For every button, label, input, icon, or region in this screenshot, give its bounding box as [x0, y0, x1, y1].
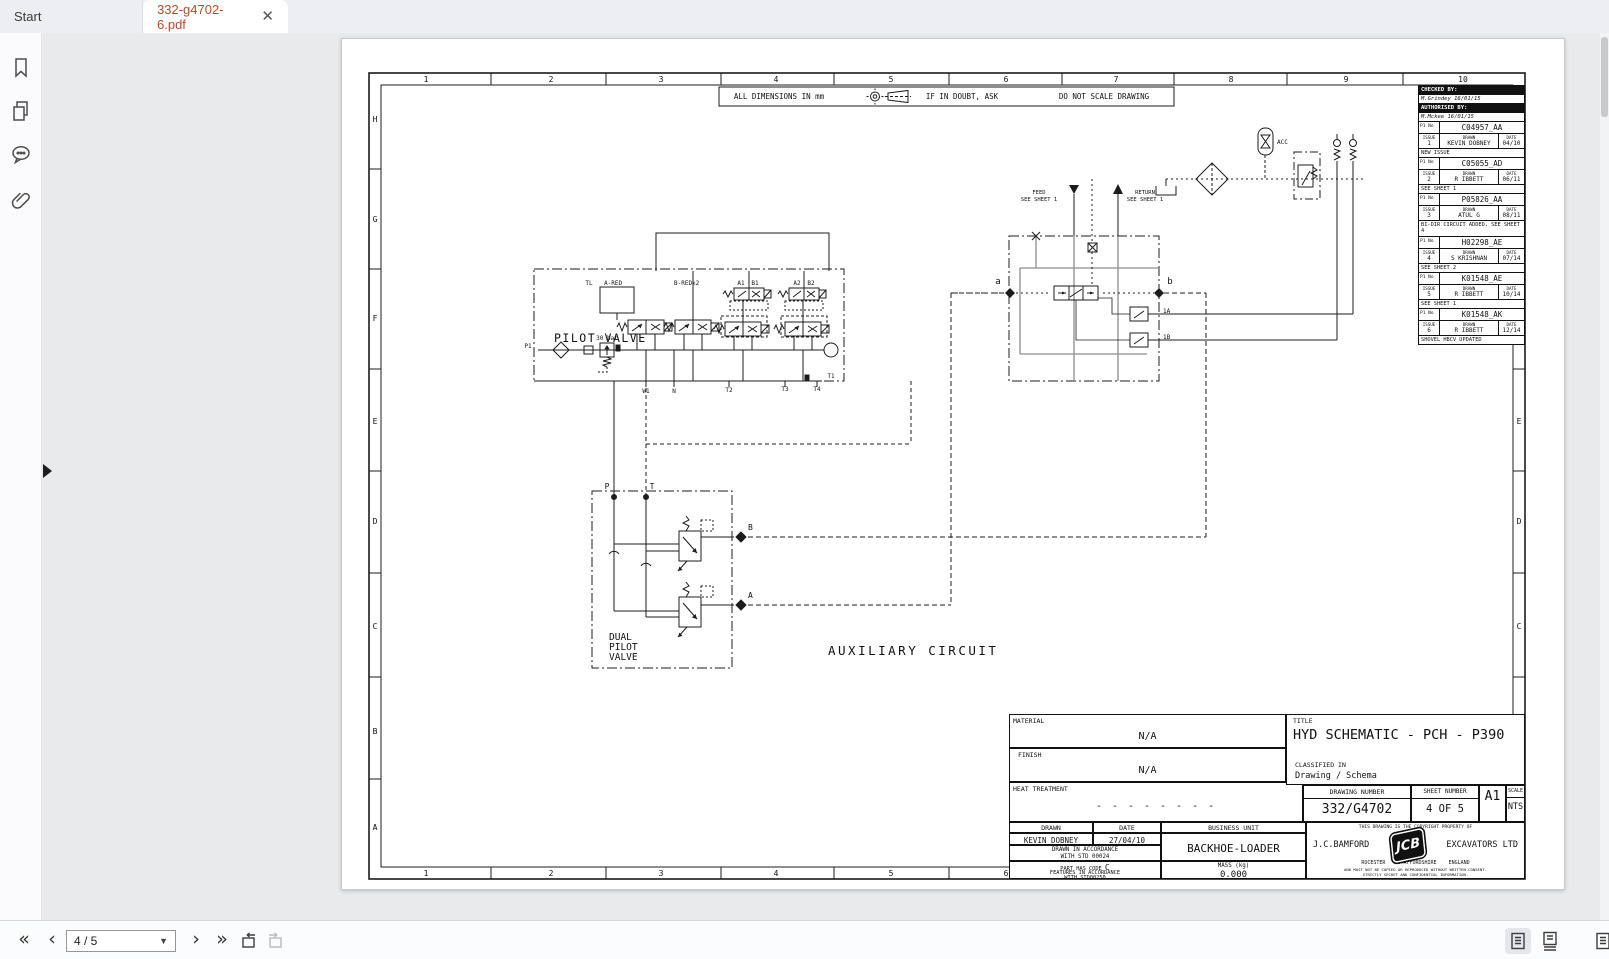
label-feed: FEED [1032, 190, 1045, 196]
classified-in: Drawing / Schema [1295, 771, 1377, 781]
business-unit-value: BACKHOE-LOADER [1161, 833, 1306, 861]
svg-text:9: 9 [1344, 75, 1349, 84]
tab-document-label: 332-g4702-6.pdf [157, 2, 251, 32]
dashed-routes [748, 293, 1206, 605]
note-bar: ALL DIMENSIONS IN mm IF IN DOUBT, ASK DO… [719, 87, 1174, 106]
routing-lines [614, 381, 911, 497]
svg-text:5: 5 [889, 869, 894, 878]
svg-text:4: 4 [774, 869, 779, 878]
label-t4: T4 [813, 386, 821, 393]
mass-value: 0.000 [1162, 870, 1305, 880]
svg-text:6: 6 [1004, 869, 1009, 878]
accumulator-chain: ACC [1156, 128, 1366, 199]
next-view-button[interactable] [262, 928, 288, 954]
drawing-title: HYD SCHEMATIC - PCH - P390 [1293, 727, 1504, 743]
rev-issue-row: ISSUE4 DRAWNS KRISHNAN DATE07/14 [1419, 249, 1524, 264]
svg-text:2: 2 [549, 869, 554, 878]
svg-text:3: 3 [659, 869, 664, 878]
svg-text:VALVE: VALVE [609, 652, 638, 663]
svg-text:1: 1 [424, 869, 429, 878]
rev-p1-row: P1 NoH02298_AE [1419, 237, 1524, 249]
rev-issue-row: ISSUE1 DRAWNKEVIN DOBNEY DATE04/10 [1419, 134, 1524, 149]
rev-p1-row: P1 NoC04957_AA [1419, 122, 1524, 134]
rev-p1-row: P1 NoC05055_AD [1419, 158, 1524, 170]
label-t1: T1 [827, 373, 835, 380]
accordance-note: DRAWN IN ACCORDANCE WITH STD 00024 [1009, 845, 1161, 861]
projection-symbol-icon [867, 89, 912, 105]
label-a1: A1 [737, 280, 745, 287]
rev-p1-row: P1 NoK01548_AK [1419, 309, 1524, 321]
mass-cell: MASS (kg) 0.000 [1161, 861, 1306, 879]
label-a-red: A-RED [604, 280, 622, 287]
label-1b: 1B [1163, 334, 1171, 341]
drawing-number-cell: DRAWING NUMBER 332/G4702 [1303, 785, 1411, 822]
page-number-select[interactable]: 4 / 5 ▼ [66, 930, 176, 952]
continuous-view-button[interactable] [1537, 928, 1563, 954]
authorised-by: M.Mckee 16/01/15 [1419, 113, 1524, 122]
label-b-red: B-REDx2 [674, 280, 700, 287]
tab-bar: Start 332-g4702-6.pdf ✕ [0, 0, 1609, 33]
svg-text:3: 3 [659, 75, 664, 84]
bottom-toolbar: « ‹ 4 / 5 ▼ › » [0, 920, 1609, 959]
rev-p1-row: P1 NoK01548_AE [1419, 273, 1524, 285]
svg-text:4: 4 [774, 75, 779, 84]
svg-text:E: E [373, 417, 378, 426]
label-port-b: b [1167, 277, 1172, 287]
finish-cell: FINISH N/A [1009, 748, 1286, 782]
rev-issue-row: ISSUE6 DRAWNR IBBETT DATE12/14 [1419, 321, 1524, 336]
tab-start[interactable]: Start [0, 0, 143, 33]
label-t3: T3 [781, 386, 789, 393]
attachments-icon[interactable] [9, 188, 33, 214]
checked-by: M.Grindey 16/01/15 [1419, 95, 1524, 104]
rev-note: SEE SHEET 1 [1419, 300, 1524, 309]
material-cell: MATERIAL N/A [1009, 714, 1286, 748]
note-noscale: DO NOT SCALE DRAWING [1059, 92, 1150, 101]
rev-note: SEE SHEET 1 [1419, 185, 1524, 194]
last-page-button[interactable]: » [210, 928, 234, 952]
left-sidebar [0, 33, 42, 920]
label-tl: TL [585, 280, 593, 287]
rev-issue-row: ISSUE3 DRAWNATUL G DATE08/11 [1419, 206, 1524, 221]
grid-col: 1 [424, 75, 429, 84]
svg-text:F: F [373, 314, 378, 323]
svg-text:10: 10 [1458, 75, 1468, 84]
scale: NTS [1507, 802, 1524, 812]
label-p1: P1 [524, 343, 532, 350]
page-indicator: 4 / 5 [74, 934, 97, 948]
svg-text:7: 7 [1114, 75, 1119, 84]
facing-view-button[interactable] [1590, 928, 1609, 954]
label-return-sheet: SEE SHEET 1 [1127, 197, 1163, 203]
pages-icon[interactable] [9, 99, 33, 125]
label-return: RETURN [1135, 190, 1155, 196]
dual-pilot-valve-title: DUAL PILOT VALVE [609, 632, 638, 663]
svg-text:6: 6 [1004, 75, 1009, 84]
svg-text:D: D [373, 517, 378, 526]
drawn-value: KEVIN DOBNEY [1009, 833, 1093, 845]
label-acc: ACC [1277, 139, 1288, 146]
copyright-cell: THIS DRAWING IS THE COPYRIGHT PROPERTY O… [1306, 822, 1525, 879]
label-b1: B1 [751, 280, 759, 287]
svg-text:B: B [373, 727, 378, 736]
label-out-b: B [748, 523, 753, 532]
bookmarks-icon[interactable] [9, 55, 33, 81]
rev-note: SHOVEL HBCV UPDATED [1419, 336, 1524, 344]
date-value: 27/04/10 [1093, 833, 1161, 845]
chevron-down-icon: ▼ [159, 936, 168, 946]
tab-start-label: Start [14, 9, 41, 24]
vertical-scrollbar[interactable] [1600, 33, 1609, 920]
sheet-size: A1 [1480, 789, 1505, 804]
single-page-view-button[interactable] [1505, 928, 1531, 954]
label-n: N [672, 388, 676, 395]
svg-text:8: 8 [1229, 75, 1234, 84]
pilot-valve-schematic [534, 233, 844, 387]
svg-text:D: D [1517, 517, 1522, 526]
note-dimensions: ALL DIMENSIONS IN mm [734, 92, 825, 101]
label-t: T [650, 482, 655, 491]
rev-issue-row: ISSUE5 DRAWNR IBBETT DATE10/14 [1419, 285, 1524, 300]
svg-text:A: A [373, 823, 378, 832]
size-cell: A1 [1479, 785, 1506, 822]
date-header: DATE [1093, 822, 1161, 833]
heat-treatment-cell: HEAT TREATMENT - - - - - - - - [1009, 782, 1303, 822]
scrollbar-thumb[interactable] [1601, 37, 1608, 117]
rev-p1-row: P1 NoP05826_AA [1419, 194, 1524, 206]
svg-text:5: 5 [889, 75, 894, 84]
svg-text:C: C [1517, 622, 1522, 631]
tab-document[interactable]: 332-g4702-6.pdf ✕ [143, 0, 288, 33]
label-feed-sheet: SEE SHEET 1 [1021, 197, 1057, 203]
label-1a: 1A [1163, 308, 1171, 315]
rev-note: BI-DIR CIRCUIT ADDED, SEE SHEET 4 [1419, 221, 1524, 236]
svg-text:G: G [373, 215, 378, 224]
svg-text:H: H [373, 115, 378, 124]
rev-note: SEE SHEET 2 [1419, 264, 1524, 273]
svg-text:2: 2 [549, 75, 554, 84]
first-page-button[interactable]: « [12, 928, 36, 952]
revision-table: CHECKED BY: M.Grindey 16/01/15 AUTHORISE… [1418, 85, 1525, 345]
label-a2: A2 [793, 280, 801, 287]
previous-page-button[interactable]: ‹ [40, 928, 64, 952]
close-icon[interactable]: ✕ [251, 9, 274, 24]
authorised-by-label: AUTHORISED BY: [1419, 104, 1524, 113]
sheet-number: 4 OF 5 [1412, 803, 1478, 815]
svg-text:E: E [1517, 417, 1522, 426]
business-unit-header: BUSINESS UNIT [1161, 822, 1306, 833]
note-doubt: IF IN DOUBT, ASK [926, 92, 999, 101]
company-address: ROCESTER STAFFORDSHIRE ENGLAND [1361, 860, 1469, 866]
code-note: PART HAS CODE C FEATURES IN ACCORDANCE W… [1009, 861, 1161, 879]
title-cell: TITLE HYD SCHEMATIC - PCH - P390 CLASSIF… [1286, 714, 1525, 785]
scale-cell: SCALE NTS [1506, 785, 1525, 822]
label-p: P [605, 482, 610, 491]
pdf-page: 1 2 3 4 5 6 7 8 9 10 1 2 3 4 5 6 7 8 9 1… [341, 38, 1565, 890]
comments-icon[interactable] [9, 142, 33, 168]
sheet-number-cell: SHEET NUMBER 4 OF 5 [1411, 785, 1479, 822]
drawing-number: 332/G4702 [1304, 802, 1410, 817]
label-b2: B2 [807, 280, 815, 287]
auxiliary-circuit-caption: AUXILIARY CIRCUIT [828, 643, 998, 658]
pilot-valve-title: PILOT VALVE [554, 331, 647, 345]
svg-text:C: C [373, 622, 378, 631]
checked-by-label: CHECKED BY: [1419, 86, 1524, 95]
drawn-header: DRAWN [1009, 822, 1093, 833]
label-out-a: A [748, 591, 753, 600]
previous-view-button[interactable] [236, 928, 262, 954]
rev-note: NEW ISSUE [1419, 149, 1524, 158]
sidebar-expand-handle[interactable] [43, 464, 52, 478]
label-t2: T2 [725, 387, 733, 394]
jcb-logo: JCB [1390, 827, 1427, 863]
label-port-a: a [995, 277, 1000, 287]
rev-issue-row: ISSUE2 DRAWNR IBBETT DATE06/11 [1419, 170, 1524, 185]
next-page-button[interactable]: › [184, 928, 208, 952]
